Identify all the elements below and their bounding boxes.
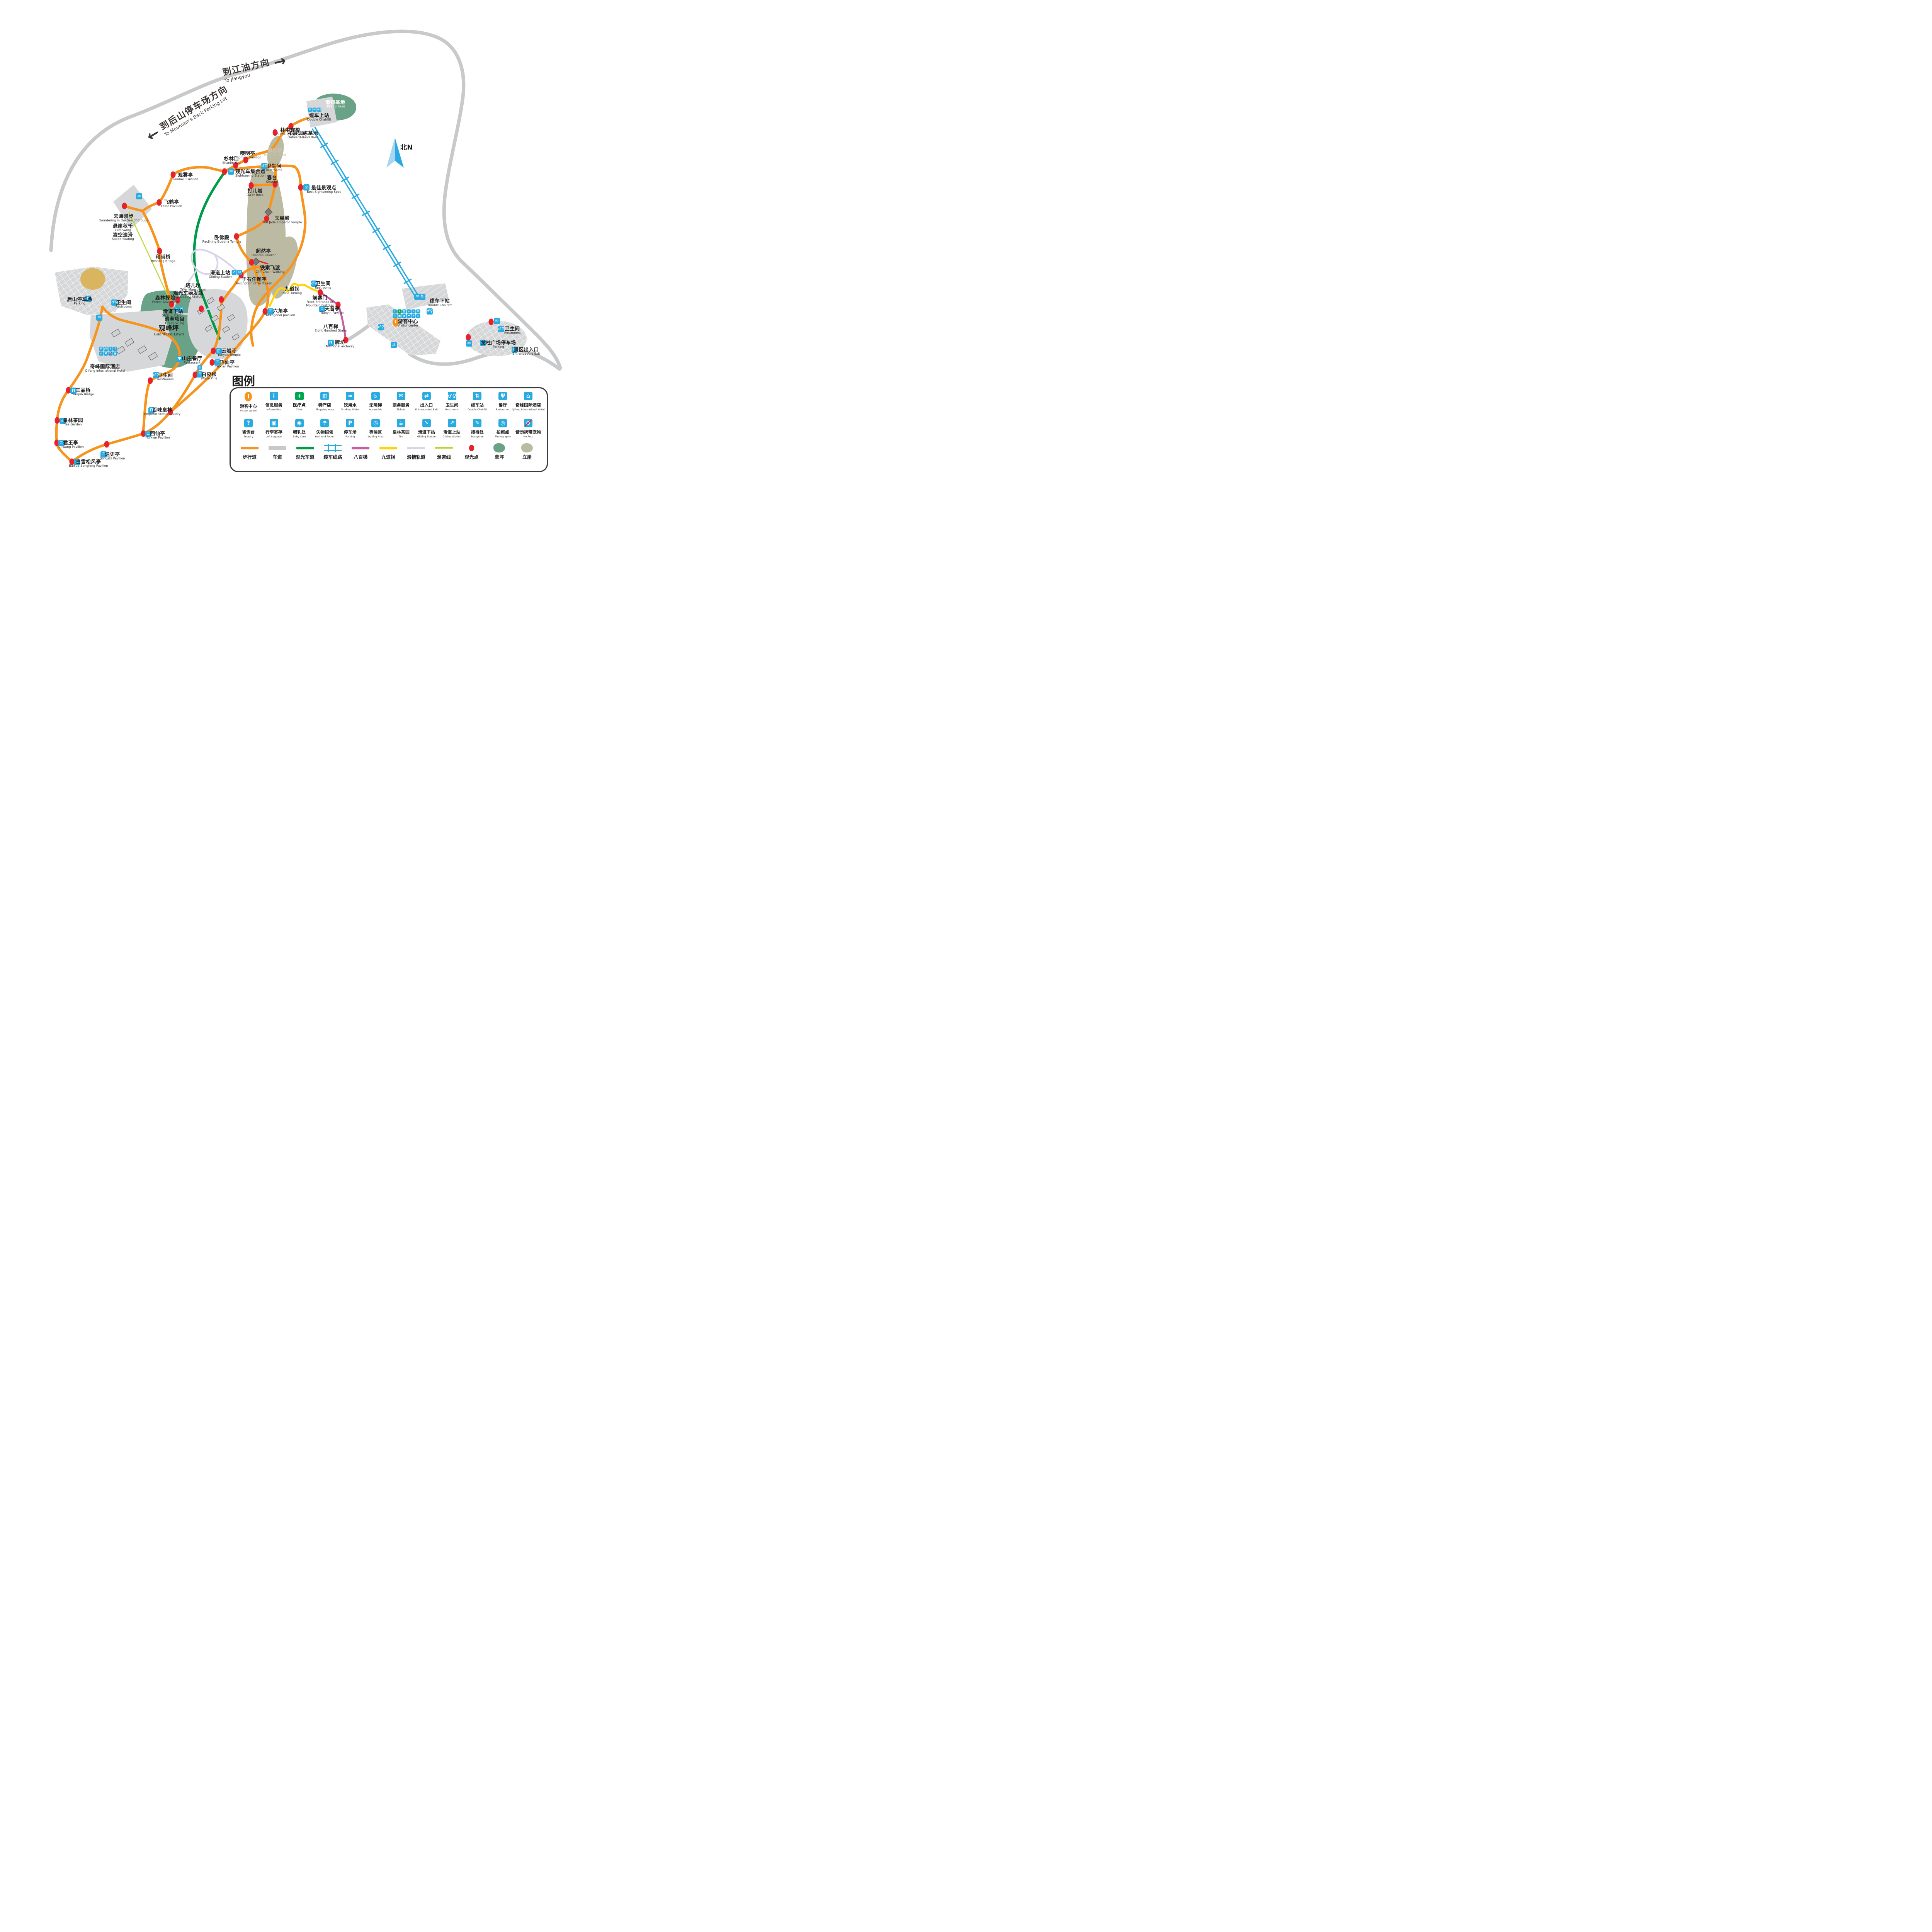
legend-en: Baby Care — [293, 435, 306, 438]
parking-icon[interactable]: P — [412, 314, 416, 318]
sight-spot-dot[interactable] — [199, 306, 204, 312]
legend-en: Qifeng International Hotel — [512, 408, 544, 411]
legend-zh: 失物招领 — [316, 429, 333, 435]
tea-hill — [80, 268, 105, 290]
poi-label-zh: 君王亭 — [58, 440, 83, 446]
poi-label-zh: 最佳景观点 — [307, 185, 341, 190]
legend-item-hotel: ⌂奇峰国际酒店Qifeng International Hotel — [515, 392, 541, 412]
legend-item-visitor: i游客中心Visitor center — [236, 392, 261, 412]
poi-label-zh: 卫生间 — [116, 300, 132, 305]
restroom-icon[interactable]: ♂♀ — [378, 324, 384, 330]
poi-label-en: Tea Garden — [63, 423, 83, 427]
legend-zh: 滑道下站 — [418, 429, 435, 435]
poi-label: 天音亭Tianyin Pavilion — [320, 306, 344, 315]
poi-label-zh: 卫生间 — [504, 326, 520, 332]
poi-label: 缆车上站Double Chairlift — [307, 113, 331, 122]
enquiry-icon[interactable]: ? — [393, 314, 397, 318]
poi-label: 卧佛殿Reclining Buddha Temple — [202, 235, 241, 244]
ticket-icon[interactable]: ✉ — [237, 270, 242, 275]
poi-label-zh: 卧佛殿 — [202, 235, 241, 240]
legend-zh: 观光点 — [464, 454, 478, 460]
poi-label-en: Best Sightseeing Spot — [307, 190, 341, 194]
poi-label-en: Parking — [67, 302, 92, 306]
info-icon: i — [270, 392, 278, 400]
chairlift-line — [313, 128, 420, 299]
restaurant-icon[interactable]: Ψ — [104, 352, 108, 356]
poi-label-en: Feihe Pavilion — [161, 205, 182, 208]
ticket-icon[interactable]: ✉ — [494, 318, 500, 324]
legend-item-accessible: ♿无障碍Accessible — [363, 392, 388, 412]
info-icon[interactable]: i — [393, 310, 397, 314]
poi-label-zh: 卫生间 — [157, 372, 173, 378]
legend-zh: 缆车站 — [471, 402, 484, 408]
legend-zh: 九道拐 — [381, 454, 395, 460]
poi-label: 森林探险Forest Adventure — [152, 295, 179, 304]
legend-item-exit: ⇄出入口Entrance And Exit — [414, 392, 439, 412]
camera-icon: ◎ — [498, 419, 507, 427]
legend-zh: 等候区 — [369, 429, 382, 435]
legend-item-restroom: ♂♀卫生间Restrooms — [439, 392, 465, 412]
poi-label-en: Feixian Pavilion — [215, 365, 239, 369]
poi-label-zh: 玉皇殿 — [262, 216, 302, 221]
waiting-icon[interactable]: ◷ — [416, 314, 420, 318]
legend-zh: 哺乳处 — [293, 429, 306, 435]
legend-zh: 停车场 — [344, 429, 357, 435]
legend-en: Parking — [345, 435, 355, 438]
legend-zh: 医疗点 — [293, 402, 306, 408]
poi-label: 游客中心Visitor center — [398, 319, 418, 328]
legend-line-bus: 观光车道 — [291, 444, 319, 460]
poi-label-en: Shanlin Kou — [223, 162, 241, 165]
baby-icon: ◉ — [295, 419, 304, 427]
poi-label-en: Guanfeng Lawn — [154, 332, 184, 337]
poi-label-zh: 滑道下站 — [162, 309, 184, 314]
legend-en: Enquiry — [244, 435, 253, 438]
legend-en: Entrance And Exit — [415, 408, 438, 411]
legend-item-reception: ✎接待处Reception — [464, 419, 490, 438]
sight-spot-dot[interactable] — [298, 184, 303, 191]
baby-icon[interactable]: ◉ — [402, 314, 406, 318]
sight-spot-dot[interactable] — [122, 203, 127, 209]
legend-zh: 缆车线路 — [323, 454, 342, 460]
poi-label: 杉林口Shanlin Kou — [223, 156, 241, 165]
luggage-icon: ▣ — [270, 419, 278, 427]
poi-label: 君王亭Junwang Pavilion — [58, 440, 83, 449]
visitor-icon: i — [245, 392, 252, 401]
poi-label: 龙柱广场停车场Parking — [481, 340, 516, 349]
poi-label-en: Inscription of Yu Youren — [236, 282, 272, 286]
restroom-icon[interactable]: ♂♀ — [104, 347, 108, 351]
poi-label: 山庄餐厅Restaurant — [182, 356, 202, 365]
poi-label: 观光车集合点Sightseeing Station — [235, 169, 265, 178]
legend-en: Accessible — [369, 408, 382, 411]
legend-item-shopping: ▥特产店Shopping Area — [312, 392, 337, 412]
poi-label-en: Sanpin Bridge — [72, 393, 94, 396]
chairlift-icon[interactable]: ⇅ — [308, 108, 312, 112]
poi-label-en: Entrance And Exit — [512, 352, 540, 356]
poi-label: 八百梯Eight Hundred Stairs — [315, 324, 347, 333]
poi-label: 百味皇林Emperor Statue Gallery — [144, 407, 180, 416]
poi-label-zh: 送史亭 — [100, 452, 125, 457]
legend-zh: 八百梯 — [354, 454, 367, 460]
exit-icon[interactable]: ⇄ — [391, 342, 397, 348]
ticket-icon[interactable]: ✉ — [136, 193, 142, 199]
poi-label-zh: 三品桥 — [72, 388, 94, 393]
legend-en: Clinic — [296, 408, 303, 411]
legend-item-water: ≈饮用水Drinking Water — [337, 392, 363, 412]
legend-line-cliff: 立崖 — [513, 444, 541, 460]
tea-icon: ☕ — [397, 419, 405, 427]
poi-label-en: Heshang Bridge — [151, 260, 175, 263]
cliff-swatch — [521, 444, 533, 451]
poi-label-en: Outward-Bund Base — [287, 136, 318, 139]
walk-chuntai-spur — [251, 184, 275, 185]
restroom-icon[interactable]: ♂♀ — [427, 308, 433, 315]
sight-spot-dot[interactable] — [148, 378, 153, 384]
poi-label: 于右任题字Inscription of Yu Youren — [236, 277, 272, 286]
legend-zh: 奇峰国际酒店 — [515, 402, 541, 408]
poi-label: 后山停车场Parking — [67, 297, 92, 306]
legend-item-enquiry: ?咨询台Enquiry — [236, 419, 261, 438]
info-icon[interactable]: i — [113, 347, 117, 351]
poi-label: 观雾亭Guanwu Pavilion — [173, 172, 198, 181]
poi-label-zh: 云岩寺 — [218, 348, 241, 354]
legend-item-tea: ☕皇林茶园Tea — [388, 419, 414, 438]
ski_up-icon[interactable]: ↗ — [232, 270, 237, 275]
poi-label: 白雪松风亭Baixue Songfeng Pavilion — [69, 459, 108, 468]
poi-label-zh: 凌空速滑 — [112, 232, 134, 238]
poi-label-zh: 白雪松风亭 — [69, 459, 108, 464]
poi-label-en: Restrooms — [504, 332, 520, 335]
lost-icon: ☂ — [320, 419, 329, 427]
poi-label-zh: 拓展训练基地 — [287, 131, 318, 136]
accessible-icon: ♿ — [371, 392, 380, 400]
legend-en: Gliding Station — [417, 435, 436, 438]
poi-label: 超然亭Chaoran Pavilion — [251, 248, 277, 257]
poi-label-zh: 杉林口 — [223, 156, 241, 162]
hotel-icon[interactable]: ⌂ — [99, 352, 104, 356]
poi-label-zh: 嘤明亭 — [234, 151, 261, 156]
legend-item-chairlift: ⇅缆车站Double Chairlift — [464, 392, 490, 412]
restroom-icon[interactable]: ♂♀ — [498, 326, 504, 332]
legend-item-ski_up: ↗滑道上站Gliding Station — [439, 419, 465, 438]
poi-label-en: Memorial archway — [326, 345, 354, 349]
poi-label-zh: 缆车下站 — [428, 298, 452, 304]
poi-label-zh: 和尚桥 — [151, 254, 175, 260]
legend-zh: 卫生间 — [446, 402, 458, 408]
legend-en: Information — [267, 408, 281, 411]
legend-zh: 出入口 — [420, 402, 433, 408]
clinic-icon[interactable]: + — [398, 310, 402, 314]
turns-swatch — [379, 444, 397, 451]
poi-label-zh: 游客中心 — [398, 319, 418, 324]
poi-label-en: Restaurant — [182, 361, 202, 365]
luggage-icon[interactable]: ▣ — [113, 352, 117, 356]
legend-en: Tea — [399, 435, 403, 438]
legend-en: Left Luggage — [266, 435, 282, 438]
ski_up-icon: ↗ — [448, 419, 456, 427]
legend-item-camera: ◎拍照点Photography — [490, 419, 515, 438]
legend-item-baby: ◉哺乳处Baby Care — [287, 419, 312, 438]
poi-label-zh: 滑道上站 — [209, 270, 231, 276]
poi-label-zh: 龙柱广场停车场 — [481, 340, 516, 345]
poi-label-zh: 八百梯 — [315, 324, 347, 329]
legend-en: Gliding Station — [443, 435, 461, 438]
poi-label-zh: 回仙亭 — [145, 431, 170, 436]
poi-label: 滑翔基地Gliding Base — [325, 100, 345, 109]
legend-en: Shopping Area — [316, 408, 334, 411]
sight-spot-dot[interactable] — [157, 248, 162, 255]
poi-label-en: Rock Climbing — [264, 153, 286, 157]
legend-zh: 步行道 — [243, 454, 257, 460]
road-swatch — [269, 444, 286, 451]
legend-zh: 车道 — [273, 454, 282, 460]
legend-line-stairs: 八百梯 — [347, 444, 374, 460]
legend-zh: 无障碍 — [369, 402, 382, 408]
luggage-icon[interactable]: ▣ — [398, 314, 402, 318]
camera-icon[interactable]: ◎ — [197, 365, 202, 370]
legend-item-ski_down: ↘滑道下站Gliding Station — [414, 419, 439, 438]
poi-label: 最佳景观点Best Sightseeing Spot — [307, 185, 341, 194]
legend-zh: 信息服务 — [265, 402, 282, 408]
poi-label-zh: 打儿岩 — [247, 188, 263, 194]
legend-line-walk: 步行道 — [236, 444, 264, 460]
poi-label-zh: 森林探险 — [152, 295, 179, 301]
poi-label-en: Wondering in the Sea of Clouds — [99, 219, 148, 223]
sight-spot-dot[interactable] — [489, 319, 494, 325]
legend-en: Drinking Water — [341, 408, 360, 411]
sight-spot-dot[interactable] — [210, 359, 215, 366]
poi-label: 飞鹤亭Feihe Pavilion — [161, 199, 182, 208]
poi-label-en: Forest Adventure — [152, 301, 179, 304]
legend-en: Photography — [495, 435, 510, 438]
restaurant-icon: Ψ — [498, 392, 507, 400]
restroom-icon: ♂♀ — [448, 392, 456, 400]
shopping-icon[interactable]: ▥ — [402, 310, 406, 314]
poi-label-zh: 观峰坪 — [154, 325, 184, 332]
enquiry-icon: ? — [244, 419, 253, 427]
ski_down-icon: ↘ — [422, 419, 431, 427]
ticket-icon: ✉ — [397, 392, 405, 400]
waiting-icon: ◷ — [371, 419, 380, 427]
poi-label-zh: 滑翔基地 — [325, 100, 345, 105]
legend-en: Visitor center — [240, 409, 257, 412]
no_pets-icon: ⊘ — [524, 419, 532, 427]
ticket-icon[interactable]: ✉ — [313, 108, 317, 112]
poi-label-en: Chaoran Pavilion — [251, 254, 277, 257]
poi-label-zh: 九道拐 — [282, 286, 302, 292]
ticket-icon[interactable]: ✉ — [96, 315, 102, 321]
legend-zh: 滑道上站 — [444, 429, 461, 435]
legend-item-clinic: +医疗点Clinic — [287, 392, 312, 412]
lost-icon[interactable]: ☂ — [407, 314, 411, 318]
spot-swatch — [469, 444, 474, 451]
poi-label-zh: 白皮松 — [201, 372, 218, 377]
legend-en: Lost And Found — [315, 435, 334, 438]
clinic-icon: + — [295, 392, 304, 400]
poi-label-zh: 超然亭 — [251, 248, 277, 254]
legend-en: No Pets — [524, 435, 533, 438]
poi-label-zh: 北N — [400, 144, 413, 151]
poi-label-zh: 后山停车场 — [67, 297, 92, 302]
poi-label-zh: 卫生间 — [315, 281, 331, 286]
poi-label: 攀岩场Rock Climbing — [264, 148, 286, 157]
poi-label-zh: 悬崖秋千 — [113, 223, 133, 229]
water-icon[interactable]: ≈ — [407, 310, 411, 314]
legend-item-waiting: ◷等候区Waiting Area — [363, 419, 388, 438]
poi-label-en: Emperor Statue Gallery — [144, 413, 180, 416]
sight-spot-dot[interactable] — [104, 441, 109, 448]
poi-label: 北N — [400, 144, 413, 151]
stairs-swatch — [352, 444, 369, 451]
walk-swatch — [241, 444, 259, 451]
legend-item-no_pets: ⊘请勿携带宠物No Pets — [515, 419, 541, 438]
legend-zh: 特产店 — [318, 402, 331, 408]
poi-label-en: The Jade Emperor Temple — [262, 221, 302, 224]
ticket-icon[interactable]: ✉ — [466, 340, 472, 347]
no_pets-icon[interactable]: ⊘ — [109, 352, 113, 356]
archway-walk — [347, 325, 369, 340]
poi-label-en: Qifeng International Hotel — [85, 369, 125, 373]
sight-spot-dot[interactable] — [55, 417, 60, 424]
poi-label: 皇林茶园Tea Garden — [63, 418, 83, 427]
poi-label: 奇峰国际酒店Qifeng International Hotel — [85, 364, 125, 373]
poi-label: 凌空速滑Speed Skating — [112, 232, 134, 241]
poi-label-zh: 春台 — [266, 175, 278, 180]
chute-swatch — [407, 444, 425, 451]
legend-services-row1: i游客中心Visitor centeri信息服务Information+医疗点C… — [236, 392, 541, 412]
ticket-icon[interactable]: ✉ — [416, 310, 420, 314]
poi-label-zh: 奇峰国际酒店 — [85, 364, 125, 369]
legend-zh: 接待处 — [471, 429, 484, 435]
parking-icon: P — [346, 419, 354, 427]
poi-label: 六角亭hexagonal pavilion — [266, 308, 295, 317]
poi-label: 牌坊Memorial archway — [326, 340, 354, 349]
legend-zh: 饮用水 — [344, 402, 357, 408]
legend-en: Tickets — [397, 408, 406, 411]
poi-label: 卫生间Restrooms — [266, 163, 282, 172]
poi-label-zh: 景区出入口 — [512, 347, 540, 352]
sight-spot-dot[interactable] — [219, 296, 224, 303]
poi-label-en: Restrooms — [116, 305, 132, 309]
poi-label-en: Tianyin Pavilion — [320, 311, 344, 315]
north-arrow-icon — [386, 138, 404, 168]
poi-label: 拓展训练基地Outward-Bund Base — [287, 131, 318, 139]
sight-spot-dot[interactable] — [222, 168, 227, 175]
shopping-icon: ▥ — [320, 392, 329, 400]
legend-line-lawn: 草坪 — [485, 444, 513, 460]
legend-item-ticket: ✉票务服务Tickets — [388, 392, 414, 412]
poi-label: 云岩寺Yunyan Temple — [218, 348, 241, 357]
legend-zh: 咨询台 — [242, 429, 255, 435]
accessible-icon[interactable]: ♿ — [412, 310, 416, 314]
poi-label-en: Huixian Pavilion — [145, 436, 170, 440]
restroom-icon[interactable]: ♂♀ — [317, 108, 321, 112]
poi-label: 飞仙亭Feixian Pavilion — [215, 360, 239, 369]
poi-label-en: Restrooms — [157, 378, 173, 381]
poi-label-en: Double Chairlift — [307, 118, 331, 122]
poi-label-en: Nine Turning — [282, 292, 302, 295]
legend-line-chute: 滑槽轨道 — [402, 444, 430, 460]
poi-label-en: Reclining Buddha Temple — [202, 240, 241, 244]
scenic-area-map: 到江油方向 To Jiangyou → ← 到后山停车场方向 To Mounta… — [0, 0, 606, 487]
legend-zh: 立崖 — [522, 454, 532, 460]
poi-label: 观峰坪Guanfeng Lawn — [154, 325, 184, 337]
poi-label-en: Eight Hundred Stairs — [315, 329, 347, 333]
poi-label-en: Parking — [481, 345, 516, 349]
poi-label-en: Restrooms — [266, 169, 282, 172]
chairlift-icon[interactable]: ⇅ — [419, 294, 425, 300]
parking-icon[interactable]: P — [99, 347, 104, 351]
chairlift-icon: ⇅ — [473, 392, 481, 400]
legend-zh: 游客中心 — [240, 403, 257, 409]
legend-item-info: i信息服务Information — [261, 392, 287, 412]
poi-label-zh: 六角亭 — [266, 308, 295, 314]
hotel-icon: ⌂ — [524, 392, 532, 400]
poi-label: 缆车下站Double Chairlift — [428, 298, 452, 307]
legend-lines-row: 步行道车道观光车道缆车线路八百梯九道拐滑槽轨道溜索线观光点草坪立崖 — [236, 444, 541, 460]
poi-label-zh: 卫生间 — [266, 163, 282, 169]
legend-zh: 皇林茶园 — [393, 429, 410, 435]
legend-zh: 溜索线 — [437, 454, 451, 460]
poi-label-zh: 于右任题字 — [236, 277, 272, 282]
poi-label-en: Da'er Rock — [247, 194, 263, 197]
poi-label: 云海漫步Wondering in the Sea of Clouds — [99, 214, 148, 223]
poi-label: 铁索飞渡Cliff Chain Walking — [255, 265, 284, 274]
poi-label-en: Chuntai — [266, 180, 278, 184]
poi-label: 九道拐Nine Turning — [282, 286, 302, 295]
sight-spot-dot[interactable] — [249, 259, 254, 266]
poi-label: 卫生间Restrooms — [116, 300, 132, 309]
exit-icon: ⇄ — [422, 392, 431, 400]
poi-label-en: Double Chairlift — [428, 304, 452, 307]
cable-swatch — [324, 444, 342, 451]
poi-label: 和尚桥Heshang Bridge — [151, 254, 175, 263]
poi-label-zh: 铁索飞渡 — [255, 265, 284, 270]
water-icon: ≈ — [346, 392, 354, 400]
poi-label-zh: 缆车上站 — [307, 113, 331, 118]
poi-label-en: hexagonal pavilion — [266, 314, 295, 317]
poi-label: 滑道上站Gliding Station — [209, 270, 231, 279]
lawn-swatch — [493, 444, 505, 451]
legend-en: Restrooms — [445, 408, 458, 411]
legend-item-parking: P停车场Parking — [337, 419, 363, 438]
sight-spot-dot[interactable] — [211, 348, 216, 354]
ticket-icon[interactable]: ✉ — [228, 168, 234, 175]
legend-en: Waiting Area — [367, 435, 383, 438]
poi-label-en: White Pine — [201, 377, 218, 381]
poi-label: 卫生间Restrooms — [157, 372, 173, 381]
poi-label: 玉皇殿The Jade Emperor Temple — [262, 216, 302, 224]
sight-spot-dot[interactable] — [466, 334, 471, 341]
poi-label: 悬崖秋千Cliff Swing — [113, 223, 133, 232]
poi-label: 春台Chuntai — [266, 175, 278, 184]
poi-label-en: Yunyan Temple — [218, 354, 241, 357]
zip-swatch — [435, 444, 453, 451]
poi-label: 白皮松White Pine — [201, 372, 218, 381]
poi-label-en: Speed Skating — [112, 238, 134, 241]
escalator-icon[interactable]: ↕ — [109, 347, 113, 351]
poi-label-zh: 塔儿坟 — [180, 283, 206, 288]
poi-label-zh: 滑草项目 — [165, 316, 185, 322]
legend-zh: 行李寄存 — [265, 429, 282, 435]
poi-label-zh: 观雾亭 — [173, 172, 198, 178]
legend-services-row2: ?咨询台Enquiry▣行李寄存Left Luggage◉哺乳处Baby Car… — [236, 419, 541, 438]
legend-zh: 票务服务 — [393, 402, 410, 408]
poi-label: 打儿岩Da'er Rock — [247, 188, 263, 197]
poi-label-en: Baixue Songfeng Pavilion — [69, 464, 108, 468]
legend-item-luggage: ▣行李寄存Left Luggage — [261, 419, 287, 438]
